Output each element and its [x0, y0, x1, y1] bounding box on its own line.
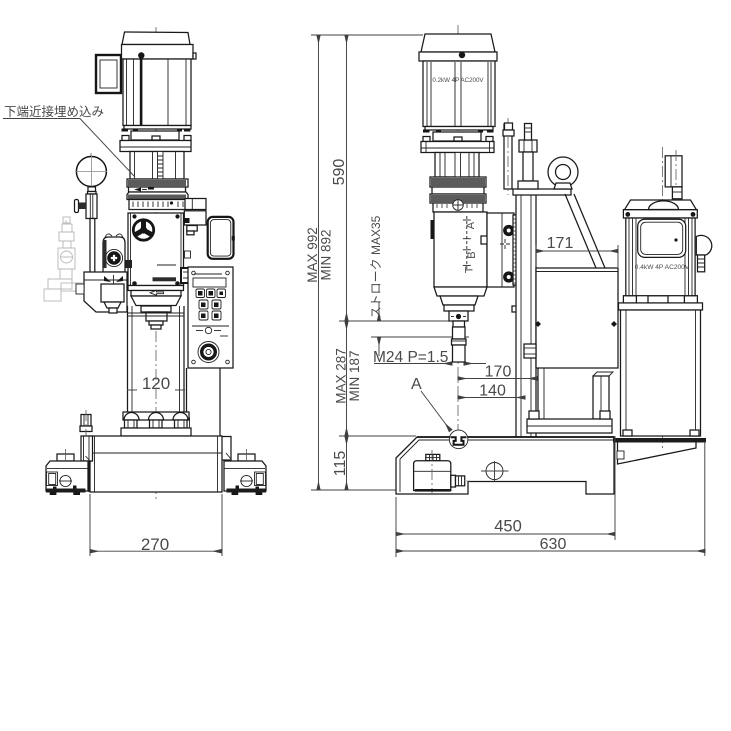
svg-text:B: B	[466, 251, 478, 258]
svg-text:下端近接埋め込み: 下端近接埋め込み	[4, 104, 104, 119]
svg-text:170: 170	[485, 364, 512, 381]
svg-text:MIN 187: MIN 187	[347, 350, 362, 401]
svg-text:0.2kW 4P AC200V: 0.2kW 4P AC200V	[432, 77, 484, 84]
svg-text:630: 630	[540, 536, 567, 553]
svg-text:450: 450	[494, 518, 522, 536]
svg-text:ストローク MAX35: ストローク MAX35	[369, 215, 383, 318]
svg-text:120: 120	[142, 374, 170, 393]
svg-text:T: T	[464, 266, 476, 273]
svg-text:0.4kW 4P AC200V: 0.4kW 4P AC200V	[635, 264, 690, 271]
svg-text:A: A	[411, 376, 422, 393]
svg-text:270: 270	[141, 535, 169, 554]
svg-text:590: 590	[331, 159, 348, 186]
svg-text:171: 171	[547, 235, 574, 252]
svg-text:MIN 892: MIN 892	[319, 229, 334, 280]
svg-text:115: 115	[332, 451, 349, 477]
svg-text:140: 140	[479, 383, 506, 400]
svg-text:A: A	[465, 221, 477, 229]
